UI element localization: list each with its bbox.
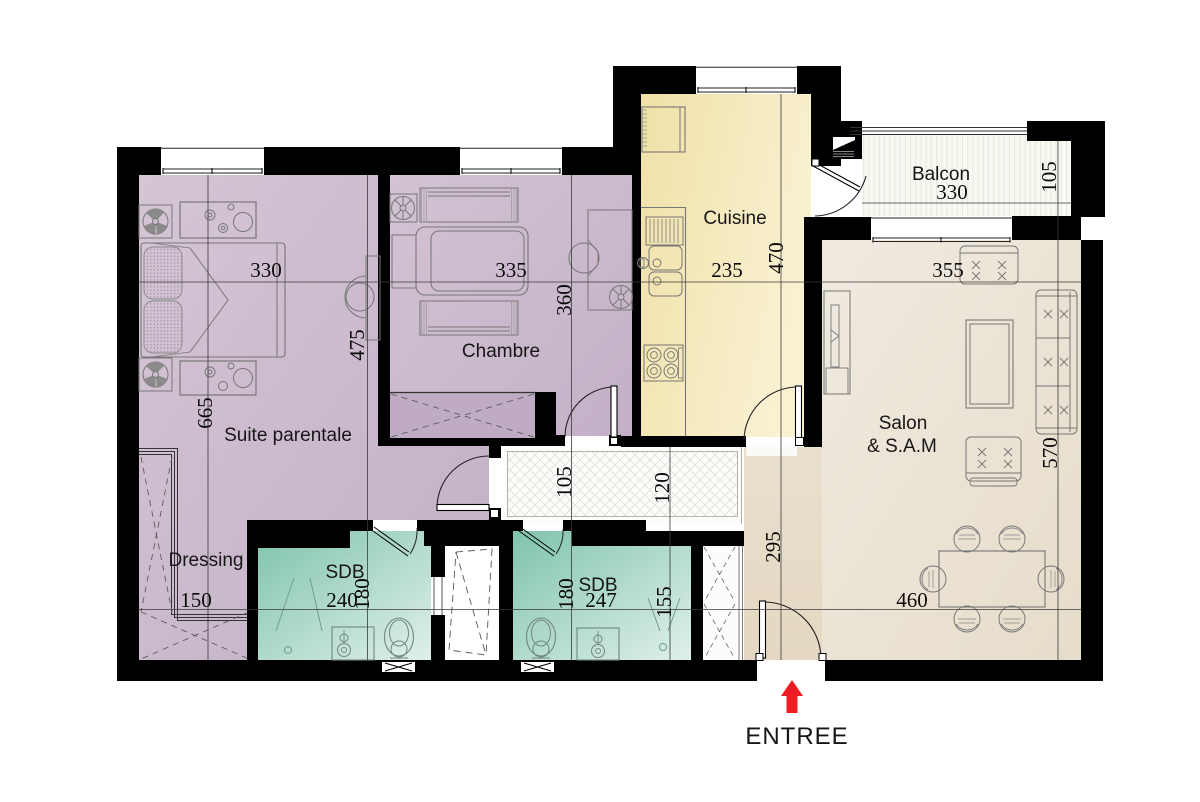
svg-text:Suite parentale: Suite parentale bbox=[224, 425, 352, 446]
svg-text:155: 155 bbox=[652, 586, 676, 618]
svg-text:330: 330 bbox=[250, 258, 282, 282]
svg-text:105: 105 bbox=[552, 466, 576, 498]
svg-text:Chambre: Chambre bbox=[462, 341, 540, 362]
svg-text:570: 570 bbox=[1038, 437, 1062, 469]
svg-text:295: 295 bbox=[761, 531, 785, 563]
svg-text:Salon: Salon bbox=[879, 413, 928, 434]
svg-text:475: 475 bbox=[345, 329, 369, 361]
svg-text:235: 235 bbox=[711, 258, 743, 282]
svg-text:335: 335 bbox=[495, 258, 527, 282]
svg-text:665: 665 bbox=[193, 397, 217, 429]
svg-text:Balcon: Balcon bbox=[912, 164, 970, 185]
svg-text:105: 105 bbox=[1037, 161, 1061, 193]
svg-text:120: 120 bbox=[650, 472, 674, 504]
svg-text:150: 150 bbox=[180, 588, 212, 612]
svg-text:SDB: SDB bbox=[578, 575, 617, 596]
svg-text:& S.A.M: & S.A.M bbox=[867, 436, 937, 457]
svg-text:Cuisine: Cuisine bbox=[703, 208, 766, 229]
svg-text:180: 180 bbox=[554, 578, 578, 610]
svg-text:ENTREE: ENTREE bbox=[745, 723, 848, 750]
svg-text:460: 460 bbox=[896, 588, 928, 612]
svg-text:SDB: SDB bbox=[325, 562, 364, 583]
svg-text:470: 470 bbox=[764, 242, 788, 274]
svg-text:355: 355 bbox=[932, 258, 964, 282]
svg-text:Dressing: Dressing bbox=[169, 550, 244, 571]
svg-text:360: 360 bbox=[552, 284, 576, 316]
